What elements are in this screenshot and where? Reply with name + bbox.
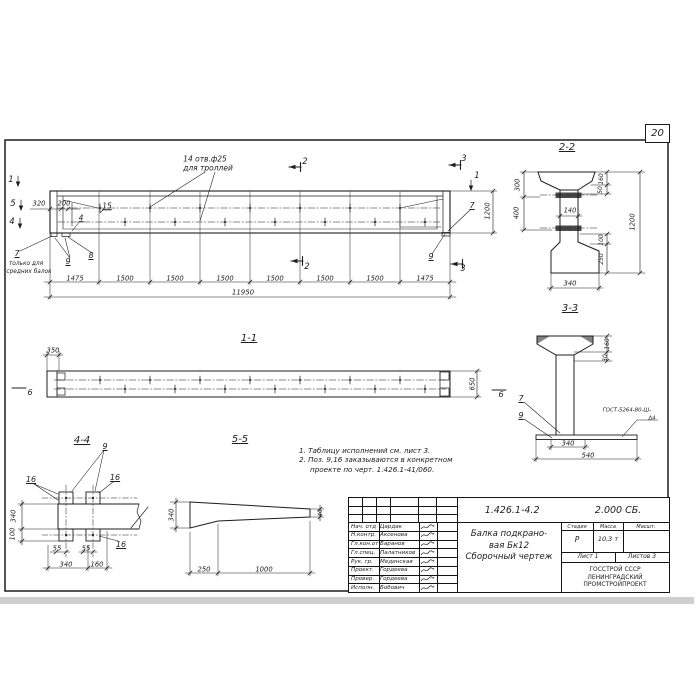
holes-note-line2: для троллей [183,164,233,172]
signature-mark [420,541,435,547]
dim: 340 [60,561,73,568]
section-title: 1-1 [241,334,257,344]
pos-label: 9 [102,443,107,451]
dim: 340 [169,509,176,522]
sheet-count: Лист 1 [561,553,615,561]
dim: 50 [598,186,604,194]
drawing-sheet: 20 1. Таблицу исполнений см. лист 3. 2. … [0,0,700,700]
doc-number-row: 1.426.1-4.2 2.000 СБ. [457,498,669,522]
stage-value: Р [561,535,593,544]
annotation-labels: 14 отв.ф25для троллей223311543202001547т… [0,0,700,700]
pos-label: 15 [102,202,112,210]
weld-note-line1: ГОСТ-5264-80-Ш- [603,408,651,413]
person-name: Гордеева [380,566,408,574]
person-name: Баранов [380,540,405,548]
cut-mark-1-left: 1 [8,176,13,185]
drawing-title: Балка подкрано- вая Бк12 Сборочный черте… [457,522,561,592]
note-middle-beams-1: только для [9,262,43,268]
pos-label: 7 [518,395,523,403]
dim: 250 [198,566,211,573]
pos-label: 7 [14,250,19,258]
person-name: Аксенова [380,531,408,539]
dim: 1000 [255,566,272,573]
dim: 160 [599,173,605,184]
dim: 1200 [630,213,637,230]
dim: 1475 [66,276,83,283]
section-title: 2-2 [559,143,575,153]
dim: 1500 [166,276,183,283]
signature-mark [420,576,435,582]
person-name: Бобович [380,584,404,592]
dim: 340 [562,440,575,447]
section-title: 3-3 [562,304,578,314]
role-label: Нач. отд [351,523,376,531]
signature-mark [420,550,435,556]
dim: 100 [599,234,605,245]
role-label: Провер. [351,575,374,583]
cut-mark-3-top: 3 [461,155,466,164]
title-line: вая Бк12 [457,541,561,553]
pos-label: 8 [88,252,93,260]
pos-label: 16 [116,541,126,549]
doc-number: 1.426.1-4.2 [485,505,540,516]
section-title: 4-4 [74,436,90,446]
cut-mark-5-left: 5 [10,200,15,209]
role-label: Исполн. [351,584,374,592]
dim: 1500 [216,276,233,283]
stage-label: Стадия [561,523,593,531]
dim: 140 [564,208,577,215]
signature-mark [420,532,435,538]
cut-mark-4-left: 4 [9,218,14,227]
dim: 1500 [366,276,383,283]
signature-mark [420,524,435,530]
section-marker: 6 [498,391,503,399]
dim: 540 [582,453,595,460]
cut-mark-2-top: 2 [302,158,307,167]
dim: 30 [603,354,609,362]
dim: 250 [599,253,605,264]
dim: 320 [33,201,46,208]
title-line: Сборочный чертеж [457,552,561,564]
pos-label: 9 [65,258,70,266]
signature-mark [420,559,435,565]
dim: 200 [58,201,71,208]
dim: 1200 [485,202,492,219]
dim: 340 [564,281,577,288]
dim: 55 [82,546,91,553]
dim: 400 [514,207,521,220]
dim: 340 [11,510,18,523]
person-name: Цардак [380,523,402,531]
pos-label: 16 [26,476,36,484]
scale-label: Масшт. [623,523,669,531]
pos-label: 7 [469,202,474,210]
person-name: Мединская [380,558,413,566]
title-line: Балка подкрано- [457,529,561,541]
holes-note-line1: 14 отв.ф25 [183,155,227,163]
dim: 160 [605,338,611,349]
signature-mark [420,585,435,591]
section-marker: 6 [27,389,32,397]
sheets-total: Листов 3 [615,553,669,561]
weld-note-line2: Δ4 [648,416,655,421]
role-label: Проект. [351,566,374,574]
role-label: Гл.спец. [351,549,375,557]
dim-total: 11950 [232,290,254,297]
dim: 40 [319,509,325,516]
dim: 1475 [416,276,433,283]
dim: 1500 [316,276,333,283]
org-line: ПРОМСТРОЙПРОЕКТ [561,581,669,589]
dim: 1500 [116,276,133,283]
dim: 650 [470,378,477,391]
pos-label: 9 [518,412,523,420]
role-label: Рук. гр. [351,558,373,566]
dim: 350 [47,348,60,355]
dim: 55 [53,546,62,553]
section-title: 5-5 [232,435,248,445]
scan-shadow [0,597,694,604]
dim: 1500 [266,276,283,283]
pos-label: 16 [110,474,120,482]
dim: 300 [515,179,522,192]
note-middle-beams-2: средних балок [6,270,51,276]
org-line: ЛЕНИНГРАДСКИЙ [561,574,669,582]
role-label: Н.контр. [351,531,376,539]
organization: ГОССТРОЙ СССР ЛЕНИНГРАДСКИЙ ПРОМСТРОЙПРО… [561,562,669,592]
mass-label: Масса [593,523,623,531]
title-block: 1.426.1-4.2 2.000 СБ. Балка подкрано- ва… [348,497,670,593]
cut-mark-1-right: 1 [474,172,479,181]
mass-value: 10,3 т [593,535,623,543]
pos-label: 4 [79,214,84,222]
role-label: Гл.кон.от [351,540,378,548]
org-line: ГОССТРОЙ СССР [561,566,669,574]
pos-label: 9 [428,253,433,261]
signature-mark [420,567,435,573]
dim: 100 [10,528,17,541]
dim: 160 [91,561,104,568]
person-name: Гордеева [380,575,408,583]
cut-mark-3-bottom: 3 [460,265,465,274]
cut-mark-2-bottom: 2 [304,263,309,272]
person-name: Палатников [380,549,415,557]
doc-suffix: 2.000 СБ. [595,505,641,516]
